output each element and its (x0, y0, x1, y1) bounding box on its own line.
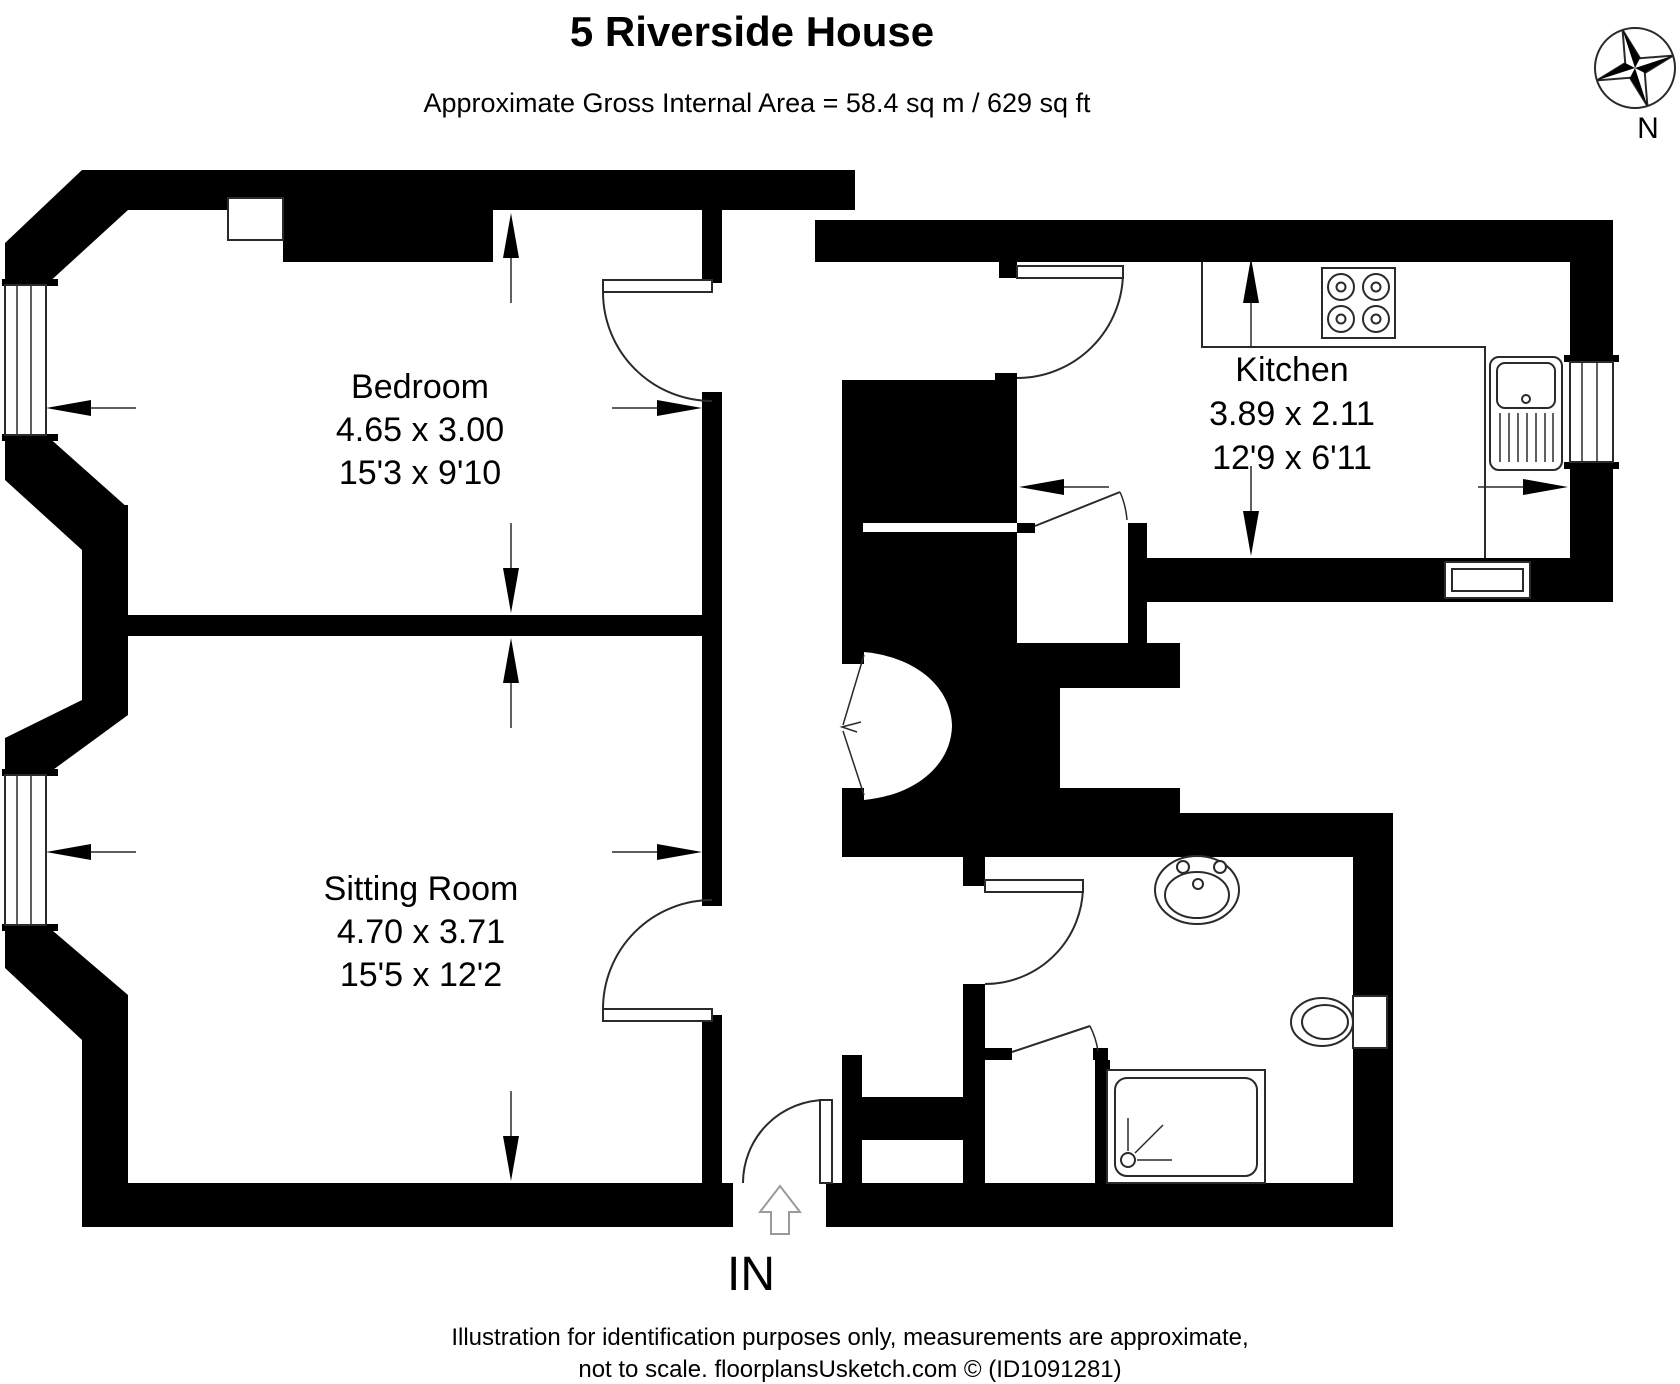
dimension-arrow (503, 213, 519, 303)
bathroom-door (985, 880, 1083, 984)
compass-icon (1595, 28, 1675, 108)
entrance-arrow-icon (760, 1186, 800, 1234)
kitchen-window-right (1564, 355, 1619, 469)
wash-basin (1155, 856, 1239, 924)
dimension-arrow (1019, 479, 1109, 495)
bay-window-bedroom (5, 285, 46, 435)
room-dim-imperial: 15'3 x 9'10 (339, 454, 501, 492)
page-title: 5 Riverside House (570, 8, 934, 55)
room-name: Sitting Room (324, 870, 519, 908)
room-dim-metric: 4.65 x 3.00 (336, 411, 504, 449)
dimension-arrow (503, 638, 519, 728)
dimension-arrow (46, 400, 136, 416)
room-dim-metric: 3.89 x 2.11 (1209, 395, 1375, 433)
area-subtitle: Approximate Gross Internal Area = 58.4 s… (423, 88, 1091, 118)
kitchen-door (1017, 266, 1123, 378)
entrance-door (743, 1100, 832, 1183)
room-dim-metric: 4.70 x 3.71 (337, 913, 505, 951)
entrance-label: IN (727, 1248, 775, 1301)
bedroom-door (603, 280, 712, 401)
footer-disclaimer-line2: not to scale. floorplansUsketch.com © (I… (578, 1356, 1121, 1383)
floorplan-page: 5 Riverside House Approximate Gross Inte… (0, 0, 1680, 1384)
dimension-arrow (612, 844, 702, 860)
floorplan-canvas: 5 Riverside House Approximate Gross Inte… (0, 0, 1680, 1384)
bay-window-sitting-room (5, 775, 46, 925)
cupboard-door (1035, 492, 1127, 526)
shower (1107, 1070, 1265, 1183)
sitting-room-door (603, 900, 712, 1021)
dimension-arrow (612, 400, 702, 416)
dimension-arrow (1478, 479, 1568, 495)
dimension-arrow (503, 523, 519, 613)
shower-door (1012, 1026, 1098, 1052)
dimension-arrow (1243, 258, 1259, 348)
hob (1322, 268, 1395, 338)
room-dim-imperial: 15'5 x 12'2 (340, 956, 502, 994)
toilet (1291, 996, 1387, 1048)
bedroom-label: Bedroom 4.65 x 3.00 15'3 x 9'10 (336, 368, 504, 492)
sitting-room-label: Sitting Room 4.70 x 3.71 15'5 x 12'2 (324, 870, 519, 994)
room-name: Bedroom (351, 368, 489, 406)
kitchen-window-bottom (1445, 562, 1530, 598)
kitchen-sink (1490, 357, 1562, 470)
dimension-arrow (503, 1091, 519, 1181)
footer-disclaimer-line1: Illustration for identification purposes… (451, 1324, 1248, 1351)
kitchen-label: Kitchen 3.89 x 2.11 12'9 x 6'11 (1209, 351, 1375, 477)
dimension-arrow (46, 844, 136, 860)
dimension-arrow (1243, 466, 1259, 556)
room-dim-imperial: 12'9 x 6'11 (1212, 439, 1372, 477)
compass-north-label: N (1637, 112, 1659, 145)
room-name: Kitchen (1235, 351, 1348, 389)
